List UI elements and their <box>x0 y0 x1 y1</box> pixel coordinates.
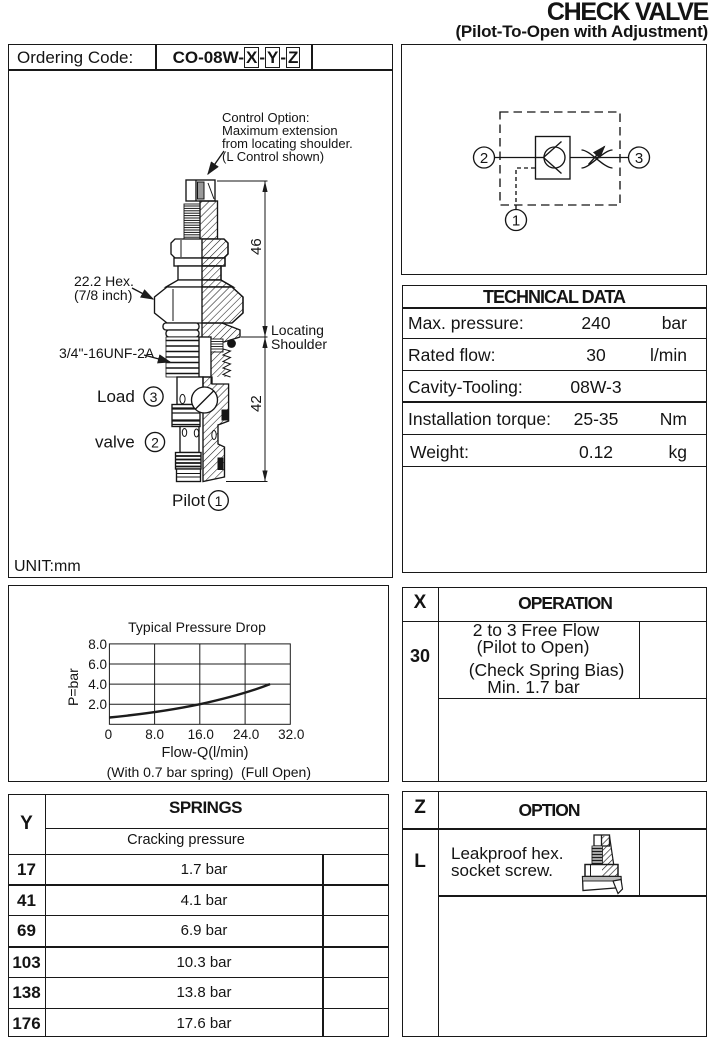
svg-text:16.0: 16.0 <box>188 727 214 742</box>
svg-text:2.0: 2.0 <box>88 697 107 712</box>
svg-text:Flow-Q(l/min): Flow-Q(l/min) <box>162 745 249 761</box>
svg-text:32.0: 32.0 <box>278 727 304 742</box>
svg-text:(With 0.7 bar spring): (With 0.7 bar spring) <box>107 764 234 780</box>
svg-text:24.0: 24.0 <box>233 727 259 742</box>
svg-text:3: 3 <box>635 150 643 167</box>
svg-text:3/4"-16UNF-2A: 3/4"-16UNF-2A <box>59 345 155 361</box>
svg-text:3: 3 <box>150 389 158 405</box>
svg-text:2: 2 <box>151 435 159 451</box>
svg-text:Shoulder: Shoulder <box>271 336 327 352</box>
svg-text:46: 46 <box>248 238 265 255</box>
svg-text:1: 1 <box>215 493 223 509</box>
svg-text:(7/8 inch): (7/8 inch) <box>74 287 132 303</box>
svg-text:Typical Pressure Drop: Typical Pressure Drop <box>128 619 266 635</box>
svg-text:1: 1 <box>512 213 520 230</box>
svg-text:0: 0 <box>105 727 113 742</box>
svg-text:Load: Load <box>97 387 135 406</box>
svg-text:(Full Open): (Full Open) <box>241 764 311 780</box>
svg-text:Pilot: Pilot <box>172 491 205 510</box>
svg-text:4.0: 4.0 <box>88 677 107 692</box>
svg-text:P=bar: P=bar <box>65 668 81 706</box>
svg-text:(L Control shown): (L Control shown) <box>222 149 324 164</box>
svg-text:6.0: 6.0 <box>88 657 107 672</box>
svg-text:8.0: 8.0 <box>88 637 107 652</box>
svg-text:2: 2 <box>480 150 488 167</box>
svg-text:8.0: 8.0 <box>145 727 164 742</box>
svg-text:42: 42 <box>248 395 265 412</box>
svg-text:valve: valve <box>95 433 135 452</box>
